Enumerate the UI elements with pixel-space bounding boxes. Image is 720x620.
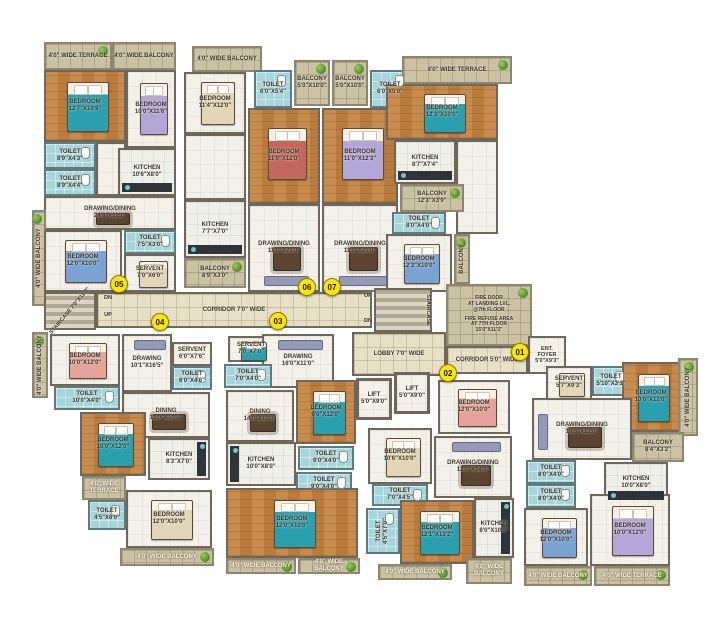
bed bbox=[139, 261, 168, 288]
dining-table bbox=[96, 213, 130, 225]
plant-icon bbox=[34, 336, 44, 346]
bedroom-u05-1: BEDROOM12'7"X10'9" bbox=[44, 70, 126, 142]
sofa bbox=[538, 414, 548, 450]
room-label: TOILET4'5"X7'0" bbox=[362, 516, 404, 546]
room-label: 4'0" WIDE BALCONY bbox=[114, 44, 174, 68]
unit-marker-01[interactable]: 01 bbox=[511, 343, 529, 361]
drawdine-u02: DRAWING/DINING12'0"X14'0" bbox=[434, 436, 512, 498]
balcony-u06-b: BALCONY8'9"X3'0" bbox=[184, 258, 246, 288]
toilet-u08: TOILET8'0"X4'0" bbox=[392, 212, 446, 234]
bed bbox=[274, 500, 316, 548]
balcony-u02-b1: 4'0" WIDE BALCONY bbox=[378, 564, 452, 580]
plan-text-up: UP bbox=[364, 293, 372, 299]
unit-marker-06[interactable]: 06 bbox=[298, 278, 316, 296]
toilet-fixture bbox=[413, 489, 422, 501]
toilet-fixture bbox=[385, 513, 394, 525]
bed bbox=[638, 374, 670, 422]
room-label: 4'0" WIDE TERRACE bbox=[404, 58, 510, 82]
plant-icon bbox=[656, 570, 666, 580]
plant-icon bbox=[684, 362, 694, 372]
bedroom-u03-1: BEDROOM9'0"X12'0" bbox=[296, 380, 356, 444]
room-label: 4'0" WIDE BALCONY bbox=[194, 48, 260, 70]
lobby: LOBBY 7'0" WIDE bbox=[352, 332, 446, 376]
kitchen-counter bbox=[188, 245, 242, 254]
kitchen-u08: KITCHEN8'7"X7'4" bbox=[394, 140, 456, 184]
toilet-u01-3: TOILET8'0"X4'0" bbox=[526, 484, 576, 508]
balcony-u02-b2: 4'0" WIDEBALCONY bbox=[466, 558, 512, 584]
dining-u03: DINING14'0"X10'0" bbox=[226, 390, 294, 442]
fire-refuge-area: FIRE DOORAT LANDING LVL.@7th FLOORFIRE R… bbox=[446, 284, 532, 346]
plant-icon bbox=[346, 562, 356, 572]
bedroom-u02-2: BEDROOM10'6"X10'0" bbox=[368, 428, 432, 484]
unit-marker-07[interactable]: 07 bbox=[323, 278, 341, 296]
sofa bbox=[452, 442, 501, 452]
drawdine-u01: DRAWING/DINING18'3"X12'0" bbox=[532, 398, 632, 460]
unit-marker-02[interactable]: 02 bbox=[439, 364, 457, 382]
toilet-fixture bbox=[105, 391, 114, 403]
kitchen-counter bbox=[608, 491, 664, 500]
toilet-fixture bbox=[561, 465, 570, 477]
terrace-u08-top: 4'0" WIDE TERRACE bbox=[402, 56, 512, 84]
plant-icon bbox=[32, 214, 42, 224]
kitchen-u06: KITCHEN7'7"X7'0" bbox=[184, 200, 246, 258]
toilet-fixture bbox=[197, 371, 206, 383]
balcony-u06-07-1: BALCONY5'0"X10'0" bbox=[294, 60, 330, 106]
bed bbox=[313, 391, 346, 435]
kitchen-counter bbox=[501, 502, 510, 554]
bedroom-u01-3: BEDROOM10'0"X12'0" bbox=[590, 494, 670, 566]
bedroom-u04-3: BEDROOM12'0"X10'0" bbox=[126, 490, 212, 548]
dining-table bbox=[461, 465, 491, 486]
plant-icon bbox=[578, 570, 588, 580]
plant-icon bbox=[498, 60, 508, 70]
drawdine-u05: DRAWING/DINING24'8"X11'1" bbox=[44, 196, 176, 230]
balcony-u05-top: 4'0" WIDE BALCONY bbox=[112, 42, 176, 70]
plant-icon bbox=[456, 238, 466, 248]
room-label: CORRIDOR 7'0" WIDE bbox=[98, 294, 370, 326]
servant-u05: SERVENT7'0"X6'0" bbox=[124, 254, 176, 292]
dining-table bbox=[250, 414, 276, 432]
kitchen-counter bbox=[398, 171, 452, 180]
toilet-fixture bbox=[561, 489, 570, 501]
bed bbox=[559, 373, 585, 397]
kitchen-u02: KITCHEN8'0"X10'0" bbox=[474, 498, 514, 558]
kitchen-u01: KITCHEN10'0"X8'0" bbox=[604, 462, 668, 504]
toilet-u02-2: TOILET4'5"X7'0" bbox=[366, 508, 400, 554]
bedroom-u01-2: BEDROOM12'0"X10'0" bbox=[524, 508, 588, 566]
toilet-u06: TOILET6'0"X5'4" bbox=[254, 70, 292, 108]
balcony-u03-b2: 4'0" WIDE BALCONY bbox=[298, 558, 360, 574]
bed bbox=[65, 240, 107, 283]
bed bbox=[458, 389, 497, 427]
bed bbox=[151, 500, 193, 540]
drawing-u04: DRAWING10'1"X16'5" bbox=[122, 334, 172, 392]
bedroom-u08-2: BEDROOM12'3"X10'0" bbox=[386, 234, 452, 292]
bed bbox=[67, 82, 109, 132]
toilet-fixture bbox=[81, 174, 90, 186]
bedroom-u08-1: BEDROOM12'3"X10'0" bbox=[386, 84, 498, 140]
toilet-u04-2: TOILET10'0"X4'0" bbox=[54, 386, 120, 410]
toilet-u04-3: TOILET4'5"X6'0" bbox=[88, 500, 126, 530]
balcony-u01-right: 4'0" WIDE BALCONY bbox=[678, 358, 698, 436]
balcony-u06-07-2: BALCONY5'0"X10'0" bbox=[332, 60, 368, 106]
bed bbox=[98, 423, 134, 467]
kitchen-u05: KITCHEN10'6"X8'0" bbox=[118, 148, 176, 196]
balcony-u01-bottom: 4'0" WIDE BALCONY bbox=[524, 566, 592, 586]
corridor-main: CORRIDOR 7'0" WIDE bbox=[96, 292, 372, 328]
bed bbox=[140, 83, 168, 135]
servant-u04: SERVENT6'0"X7'6" bbox=[172, 342, 212, 366]
lift-2: LIFT5'0"X9'0" bbox=[394, 372, 430, 414]
servant-u01: SERVENT5'7"X9'3" bbox=[546, 366, 592, 400]
room-label: LOBBY 7'0" WIDE bbox=[354, 334, 444, 374]
plant-icon bbox=[518, 288, 528, 298]
sofa bbox=[278, 340, 323, 350]
toilet-u04-1: TOILET6'0"X4'6" bbox=[172, 366, 212, 390]
balcony-u08-right: BALCONY bbox=[454, 234, 470, 284]
plant-icon bbox=[438, 568, 448, 578]
kitchen-counter bbox=[197, 442, 206, 476]
plan-text-staircase: STAIRCASE bbox=[425, 294, 431, 325]
plant-icon bbox=[282, 562, 292, 572]
balcony-u04-bottom: 4'0" WIDE BALCONY bbox=[120, 548, 214, 566]
unit-marker-04[interactable]: 04 bbox=[151, 313, 169, 331]
bedroom-u06-1: BEDROOM11'4"X12'0" bbox=[184, 72, 246, 134]
room-label: 4'0" WIDE BALCONY bbox=[122, 550, 212, 564]
bedroom-u06-2: BEDROOM11'0"X12'0" bbox=[248, 108, 320, 204]
bed bbox=[268, 128, 307, 180]
bed bbox=[386, 438, 421, 477]
toilet-u05-1: TOILET8'9"X4'3" bbox=[44, 142, 96, 169]
bedroom-u02-3: BEDROOM12'1"X10'2" bbox=[400, 500, 474, 564]
room-label: 4'0" WIDEBALCONY bbox=[468, 560, 510, 582]
kitchen-counter bbox=[122, 183, 172, 192]
passage-u06 bbox=[184, 134, 246, 200]
sofa bbox=[134, 340, 166, 350]
room-label: 4'0" WIDETERRACE bbox=[84, 478, 124, 498]
toilet-u03-1: TOILET7'0"X4'0" bbox=[224, 364, 272, 388]
balcony-u06-top: 4'0" WIDE BALCONY bbox=[192, 46, 262, 72]
unit-marker-03[interactable]: 03 bbox=[269, 312, 287, 330]
plant-icon bbox=[316, 64, 326, 74]
bed bbox=[542, 518, 577, 558]
toilet-fixture bbox=[395, 75, 404, 87]
dining-table bbox=[152, 414, 186, 430]
sofa bbox=[339, 276, 387, 286]
toilet-u03-2: TOILET9'0"X4'0" bbox=[298, 446, 354, 470]
dining-table bbox=[273, 247, 301, 271]
lift-1: LIFT5'0"X9'0" bbox=[356, 378, 392, 420]
balcony-u03-b1: 4'0" WIDE BALCONY bbox=[226, 558, 296, 574]
toilet-fixture bbox=[431, 217, 440, 229]
plant-icon bbox=[232, 262, 242, 272]
terrace-u05-top: 4'0" WIDE TERRACE bbox=[44, 42, 112, 70]
plan-text-up: UP bbox=[104, 312, 112, 318]
bedroom-u05-2: BEDROOM10'0"X11'6" bbox=[126, 70, 176, 148]
bedroom-u04-1: BEDROOM10'0"X12'0" bbox=[50, 334, 120, 386]
bed bbox=[404, 244, 440, 284]
room-label: LIFT5'0"X9'0" bbox=[397, 375, 427, 411]
plant-icon bbox=[200, 552, 210, 562]
plan-text-dn: DN bbox=[104, 295, 112, 301]
balcony-u04-left: 4'0" WIDE BALCONY bbox=[32, 332, 48, 398]
toilet-fixture bbox=[339, 451, 348, 463]
plant-icon bbox=[450, 188, 460, 198]
kitchen-u04: KITCHEN8'3"X7'0" bbox=[148, 438, 210, 480]
terrace-u04-small: 4'0" WIDETERRACE bbox=[82, 476, 126, 500]
room-label: SERVENT6'0"X7'6" bbox=[174, 344, 210, 364]
bed bbox=[420, 511, 460, 555]
bed bbox=[69, 343, 107, 379]
toilet-fixture bbox=[111, 505, 120, 517]
kitchen-counter bbox=[230, 446, 239, 482]
toilet-fixture bbox=[161, 235, 170, 247]
toilet-fixture bbox=[615, 371, 624, 383]
toilet-u05-2: TOILET8'9"X4'4" bbox=[44, 169, 96, 196]
room-label: BALCONY8'4"X3'2" bbox=[634, 434, 682, 460]
balcony-u08: BALCONY12'3"X3'9" bbox=[400, 184, 464, 212]
unit-marker-05[interactable]: 05 bbox=[110, 275, 128, 293]
bed bbox=[241, 342, 267, 361]
bed bbox=[424, 94, 466, 133]
dining-table bbox=[349, 247, 378, 271]
balcony-u01-mid: BALCONY8'4"X3'2" bbox=[632, 432, 684, 462]
toilet-u01-2: TOILET8'0"X4'0" bbox=[526, 460, 576, 484]
bed bbox=[612, 506, 654, 556]
floor-plan: 4'0" WIDE TERRACE4'0" WIDE BALCONYBEDROO… bbox=[0, 0, 720, 620]
toilet-u05-3: TOILET7'5"X3'0" bbox=[124, 230, 176, 254]
terrace-u01-bottom: 4'0" WIDE TERRACE bbox=[594, 566, 670, 586]
bedroom-u04-2: BEDROOM10'0"X12'0" bbox=[80, 412, 146, 476]
bedroom-u03-2: BEDROOM12'0"X10'0" bbox=[226, 488, 358, 558]
plant-icon bbox=[98, 46, 108, 56]
toilet-fixture bbox=[257, 369, 266, 381]
bed bbox=[342, 128, 384, 180]
plant-icon bbox=[354, 64, 364, 74]
dining-table bbox=[568, 427, 602, 448]
toilet-fixture bbox=[277, 75, 286, 87]
kitchen-u03: KITCHEN10'0"X8'0" bbox=[226, 442, 296, 486]
bed bbox=[201, 82, 235, 125]
toilet-fixture bbox=[81, 147, 90, 159]
staircase-right bbox=[374, 288, 432, 332]
toilet-fixture bbox=[337, 477, 346, 489]
bedroom-u02-1: BEDROOM12'0"X10'0" bbox=[438, 380, 510, 434]
room-label: LIFT5'0"X9'0" bbox=[359, 381, 389, 417]
plan-text-dn: DN bbox=[364, 318, 372, 324]
